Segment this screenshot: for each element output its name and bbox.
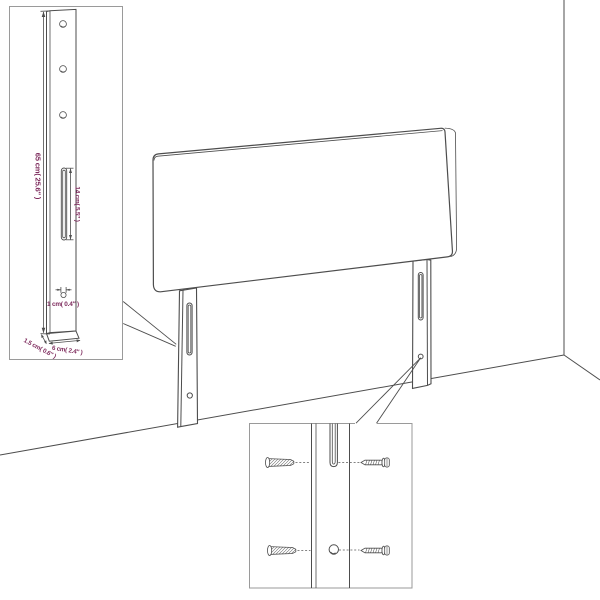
right-leg [413, 259, 432, 388]
left-leg-outline [178, 288, 198, 427]
hole-dimension-label: 1 cm( 0.4″ ) [47, 301, 79, 308]
leader-line [123, 302, 176, 345]
right-leg-edge-line [427, 259, 428, 385]
left-leg [178, 288, 198, 427]
leader-lines-left [123, 302, 176, 347]
callout-box-border [250, 424, 413, 589]
callout-mounting-detail [250, 424, 413, 589]
diagram-canvas: 65 cm( 25.6″ ) 14 cm( 5.5″ ) 1 cm( 0.4″ … [0, 0, 600, 600]
leader-line [377, 358, 421, 423]
slot-dimension-label: 14 cm( 5.5″ ) [74, 186, 81, 221]
floor-line-right [564, 355, 600, 380]
callout-leg-dimensions: 65 cm( 25.6″ ) 14 cm( 5.5″ ) 1 cm( 0.4″ … [10, 7, 123, 361]
headboard-assembly-diagram: 65 cm( 25.6″ ) 14 cm( 5.5″ ) 1 cm( 0.4″ … [0, 0, 600, 600]
headboard-panel [153, 128, 457, 292]
leader-line [123, 324, 176, 347]
height-dimension-label: 65 cm( 25.6″ ) [34, 153, 43, 200]
